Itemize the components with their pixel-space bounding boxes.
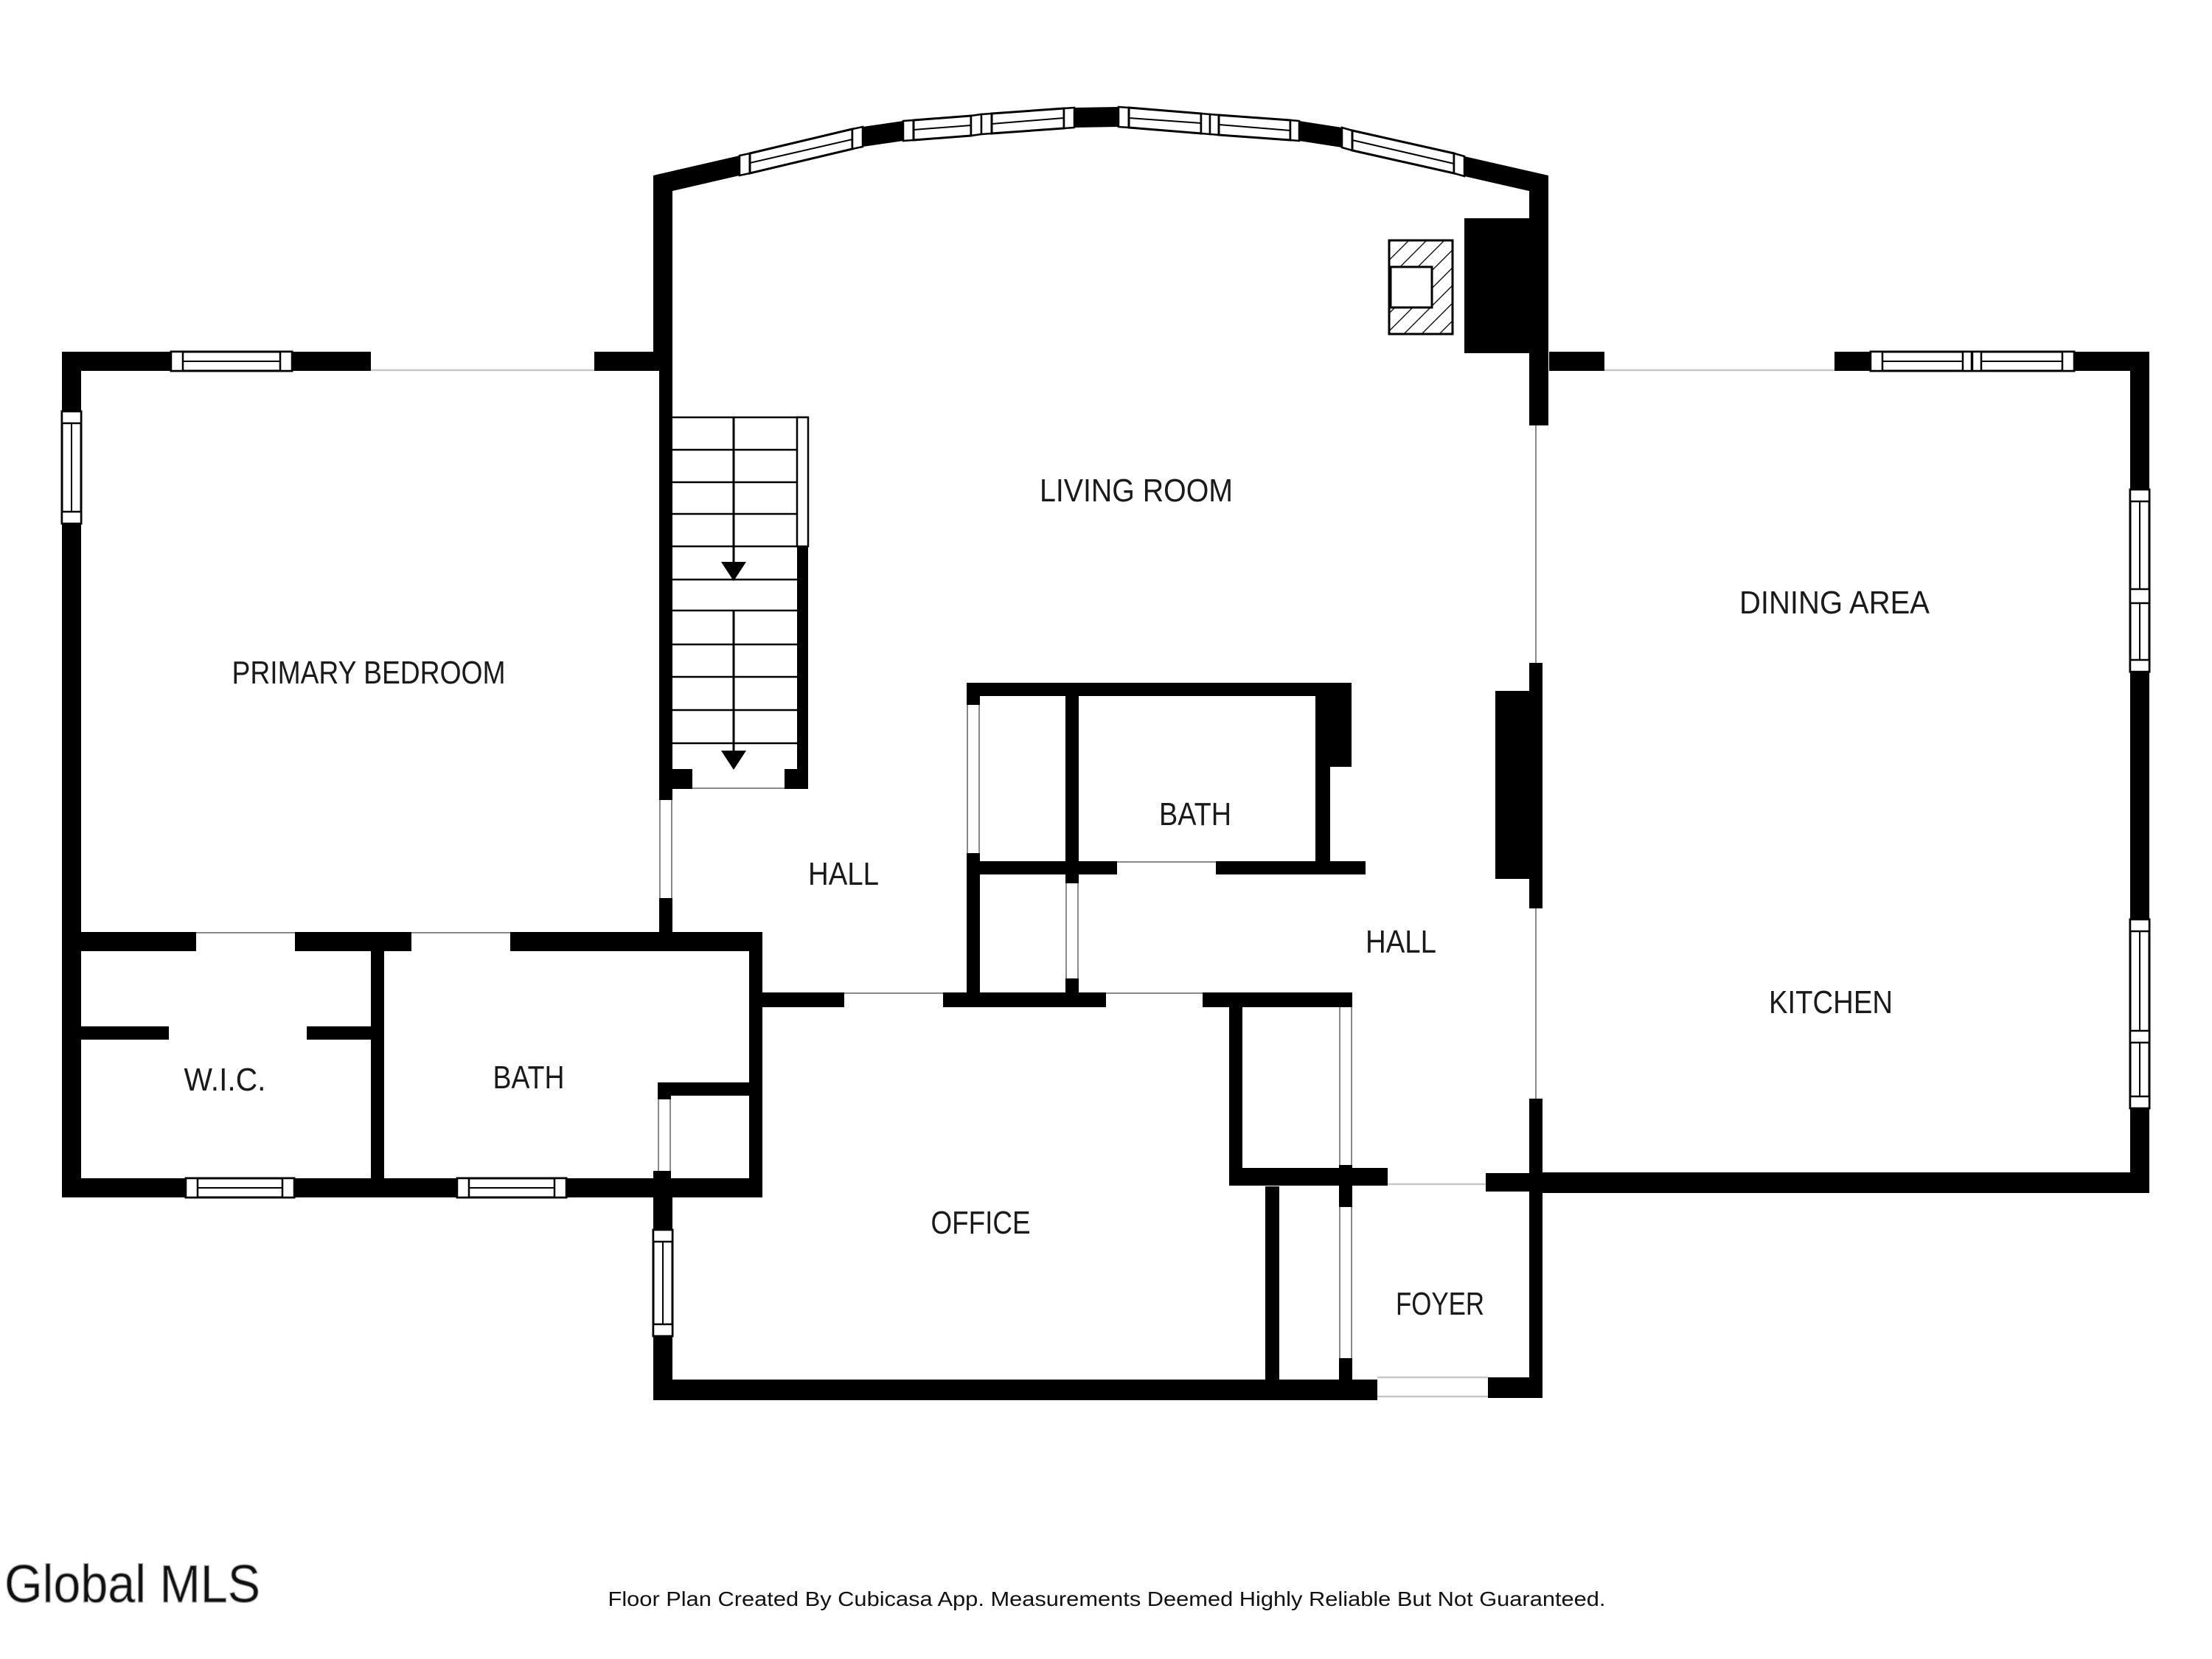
svg-text:Floor Plan Created By Cubicasa: Floor Plan Created By Cubicasa App. Meas… <box>608 1587 1606 1610</box>
svg-text:HALL: HALL <box>1366 924 1436 960</box>
svg-text:LIVING ROOM: LIVING ROOM <box>1040 473 1233 509</box>
svg-text:OFFICE: OFFICE <box>931 1205 1031 1241</box>
svg-text:KITCHEN: KITCHEN <box>1769 984 1893 1020</box>
svg-text:PRIMARY BEDROOM: PRIMARY BEDROOM <box>232 655 506 691</box>
svg-text:BATH: BATH <box>493 1060 565 1096</box>
svg-text:BATH: BATH <box>1159 796 1231 832</box>
svg-text:DINING AREA: DINING AREA <box>1739 585 1930 621</box>
svg-text:Global MLS: Global MLS <box>4 1555 260 1614</box>
svg-text:HALL: HALL <box>808 856 879 892</box>
svg-text:W.I.C.: W.I.C. <box>184 1062 266 1098</box>
svg-text:FOYER: FOYER <box>1396 1286 1484 1322</box>
